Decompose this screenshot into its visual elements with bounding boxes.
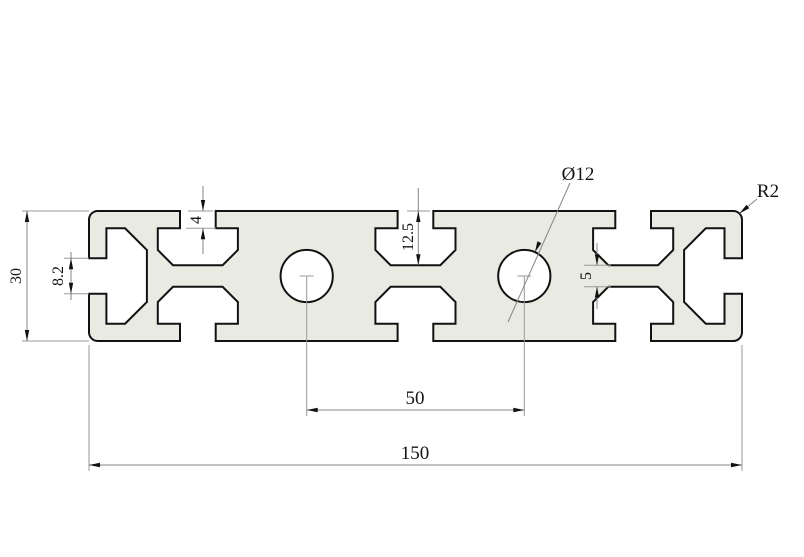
dim-text-hole-diameter: Ø12: [562, 164, 595, 185]
arrow-height-bottom: [25, 330, 29, 341]
arrow-width-left: [89, 463, 100, 467]
arrow-neck-upper: [201, 200, 205, 211]
arrow-neck-lower: [201, 228, 205, 239]
dim-text-total-width: 150: [401, 443, 430, 464]
arrow-slotopen-top: [69, 258, 73, 269]
dim-text-slot-depth: 12.5: [400, 223, 417, 251]
dim-text-web-thickness: 5: [578, 272, 595, 280]
drawing-canvas: 30 8.2 4 12.5 5 50 150 Ø12 R2: [0, 0, 804, 557]
arrow-slotopen-bottom: [69, 283, 73, 294]
arrow-holespacing-left: [307, 408, 318, 412]
dim-text-hole-spacing: 50: [406, 388, 425, 409]
arrow-slotdepth-bottom: [416, 254, 420, 265]
dim-text-neck-depth: 4: [188, 216, 205, 224]
dim-text-slot-opening: 8.2: [50, 266, 67, 286]
arrow-height-top: [25, 211, 29, 222]
arrow-width-right: [731, 463, 742, 467]
dim-text-corner-radius: R2: [757, 181, 779, 202]
profile-technical-drawing: 30 8.2 4 12.5 5 50 150 Ø12 R2: [0, 0, 804, 557]
dimension-texts: 30 8.2 4 12.5 5 50 150 Ø12 R2: [8, 164, 779, 464]
arrow-holespacing-right: [513, 408, 524, 412]
arrow-slotdepth-top: [416, 211, 420, 222]
dim-text-height: 30: [8, 268, 25, 284]
